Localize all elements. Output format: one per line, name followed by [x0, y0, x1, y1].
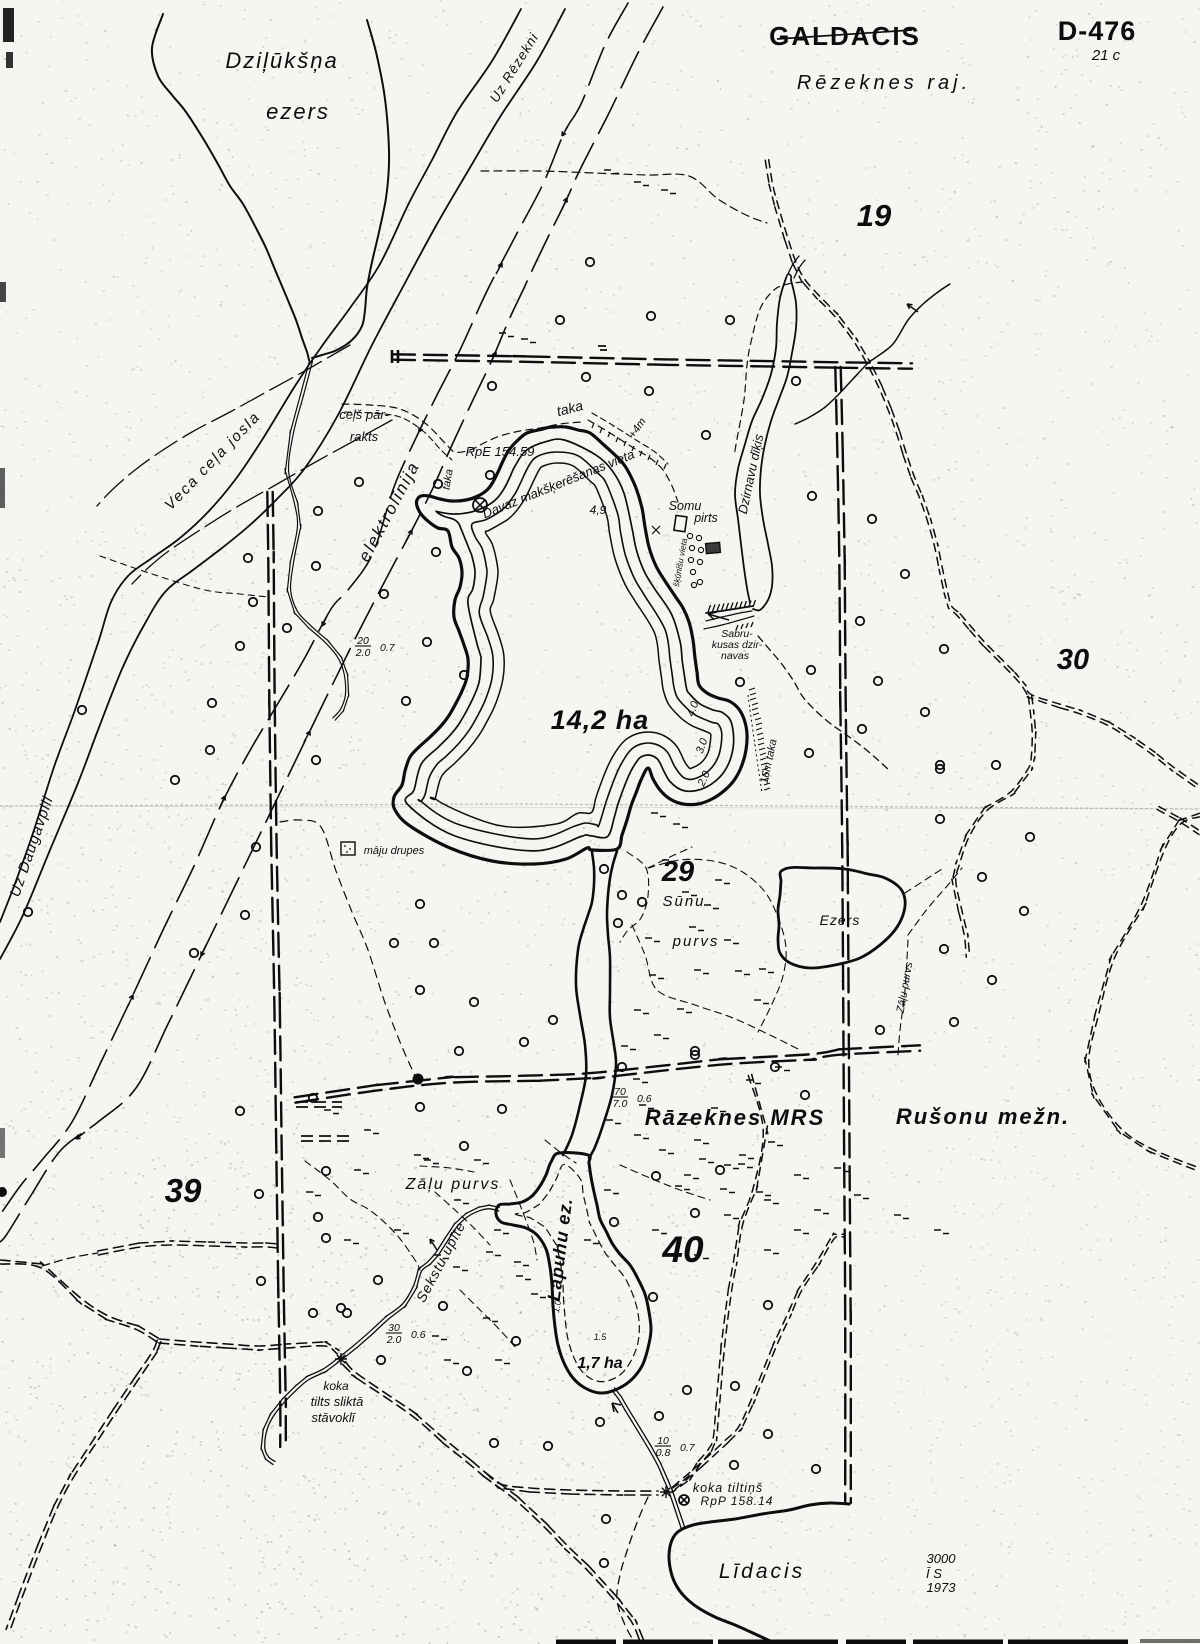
svg-text:0.8: 0.8 [656, 1447, 671, 1459]
svg-text:Rāzeknes MRS: Rāzeknes MRS [645, 1105, 826, 1130]
svg-text:3000: 3000 [927, 1551, 957, 1566]
svg-text:D-476: D-476 [1058, 16, 1137, 46]
svg-text:14,2 ha: 14,2 ha [551, 705, 650, 735]
svg-text:purvs: purvs [672, 933, 720, 950]
svg-text:ezers: ezers [266, 99, 330, 124]
svg-text:Līdacis: Līdacis [719, 1560, 805, 1583]
svg-text:10: 10 [657, 1435, 669, 1447]
svg-text:stāvoklī: stāvoklī [311, 1410, 356, 1425]
svg-text:navas: navas [721, 650, 750, 662]
svg-text:30: 30 [1057, 644, 1089, 676]
svg-text:pirts: pirts [693, 511, 718, 525]
svg-text:RpE 154.59: RpE 154.59 [466, 444, 535, 459]
svg-text:māju drupes: māju drupes [364, 845, 425, 857]
svg-text:20: 20 [356, 635, 369, 647]
svg-text:ceļš pār-: ceļš pār- [339, 407, 389, 422]
svg-text:0.7: 0.7 [380, 642, 396, 654]
svg-text:0.6: 0.6 [411, 1329, 426, 1341]
svg-text:2.0: 2.0 [386, 1334, 402, 1346]
svg-text:40: 40 [661, 1229, 704, 1270]
svg-text:Zāļu purvs: Zāļu purvs [405, 1176, 501, 1193]
svg-text:Ezers: Ezers [820, 912, 861, 928]
svg-text:tilts sliktā: tilts sliktā [311, 1394, 364, 1409]
svg-text:7.0: 7.0 [613, 1098, 628, 1110]
svg-text:0.6: 0.6 [637, 1093, 652, 1105]
svg-text:GALDACIS: GALDACIS [769, 21, 921, 51]
svg-text:1973: 1973 [927, 1580, 957, 1595]
svg-text:Dziļūkšņa: Dziļūkšņa [225, 48, 338, 73]
svg-text:Rušonu mežn.: Rušonu mežn. [896, 1104, 1070, 1129]
svg-text:1.0: 1.0 [551, 1299, 563, 1313]
svg-text:Ī S: Ī S [926, 1566, 942, 1581]
svg-text:2.0: 2.0 [355, 647, 371, 659]
svg-text:RpP 158.14: RpP 158.14 [701, 1494, 774, 1508]
svg-text:rakts: rakts [350, 429, 379, 444]
svg-text:Sūnu: Sūnu [662, 893, 705, 910]
svg-text:koka tiltiņš: koka tiltiņš [693, 1481, 763, 1495]
svg-text:19: 19 [857, 198, 892, 233]
svg-text:Rēzeknes raj.: Rēzeknes raj. [797, 72, 971, 94]
svg-text:39: 39 [165, 1172, 202, 1209]
svg-text:0.7: 0.7 [680, 1442, 696, 1454]
svg-text:4,9: 4,9 [590, 503, 607, 517]
svg-text:29: 29 [661, 856, 694, 888]
svg-text:koka: koka [323, 1379, 349, 1393]
svg-text:1.5: 1.5 [594, 1332, 608, 1342]
svg-text:1,7 ha: 1,7 ha [577, 1355, 622, 1372]
svg-text:21 c: 21 c [1091, 47, 1121, 64]
svg-text:70: 70 [614, 1086, 626, 1098]
svg-text:30: 30 [388, 1322, 400, 1334]
